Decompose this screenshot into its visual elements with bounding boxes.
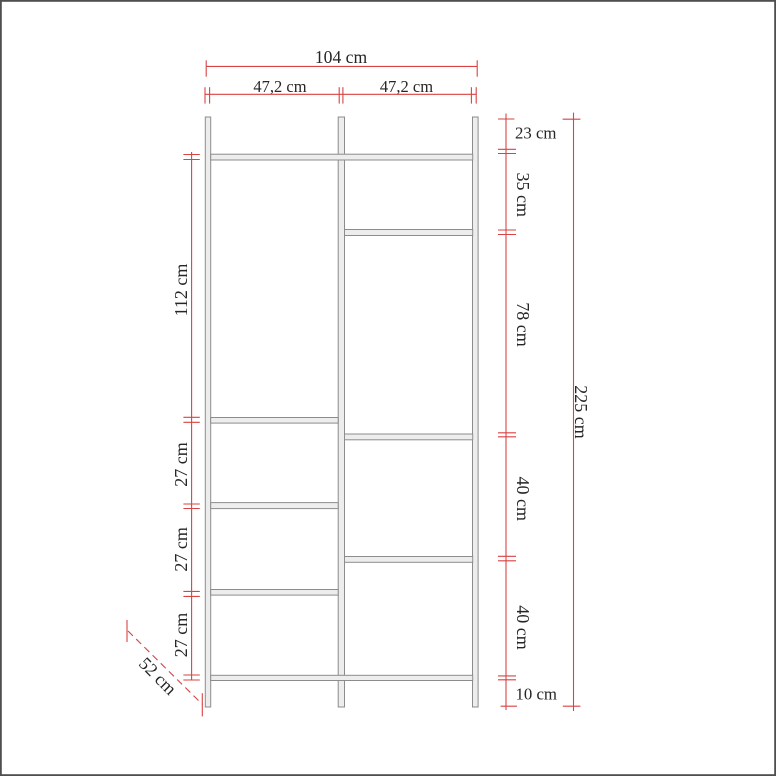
svg-text:225 cm: 225 cm	[571, 385, 591, 439]
svg-text:47,2 cm: 47,2 cm	[380, 77, 433, 96]
svg-text:35 cm: 35 cm	[513, 172, 533, 217]
svg-text:104 cm: 104 cm	[315, 47, 368, 67]
svg-text:27 cm: 27 cm	[171, 442, 191, 487]
svg-text:27 cm: 27 cm	[171, 613, 191, 658]
svg-text:112 cm: 112 cm	[171, 264, 191, 317]
svg-text:40 cm: 40 cm	[513, 605, 533, 650]
svg-text:27 cm: 27 cm	[171, 527, 191, 572]
svg-text:78 cm: 78 cm	[513, 302, 533, 347]
svg-text:23 cm: 23 cm	[515, 124, 556, 143]
svg-text:10 cm: 10 cm	[516, 685, 557, 704]
svg-text:40 cm: 40 cm	[513, 477, 533, 522]
svg-text:47,2 cm: 47,2 cm	[253, 77, 306, 96]
